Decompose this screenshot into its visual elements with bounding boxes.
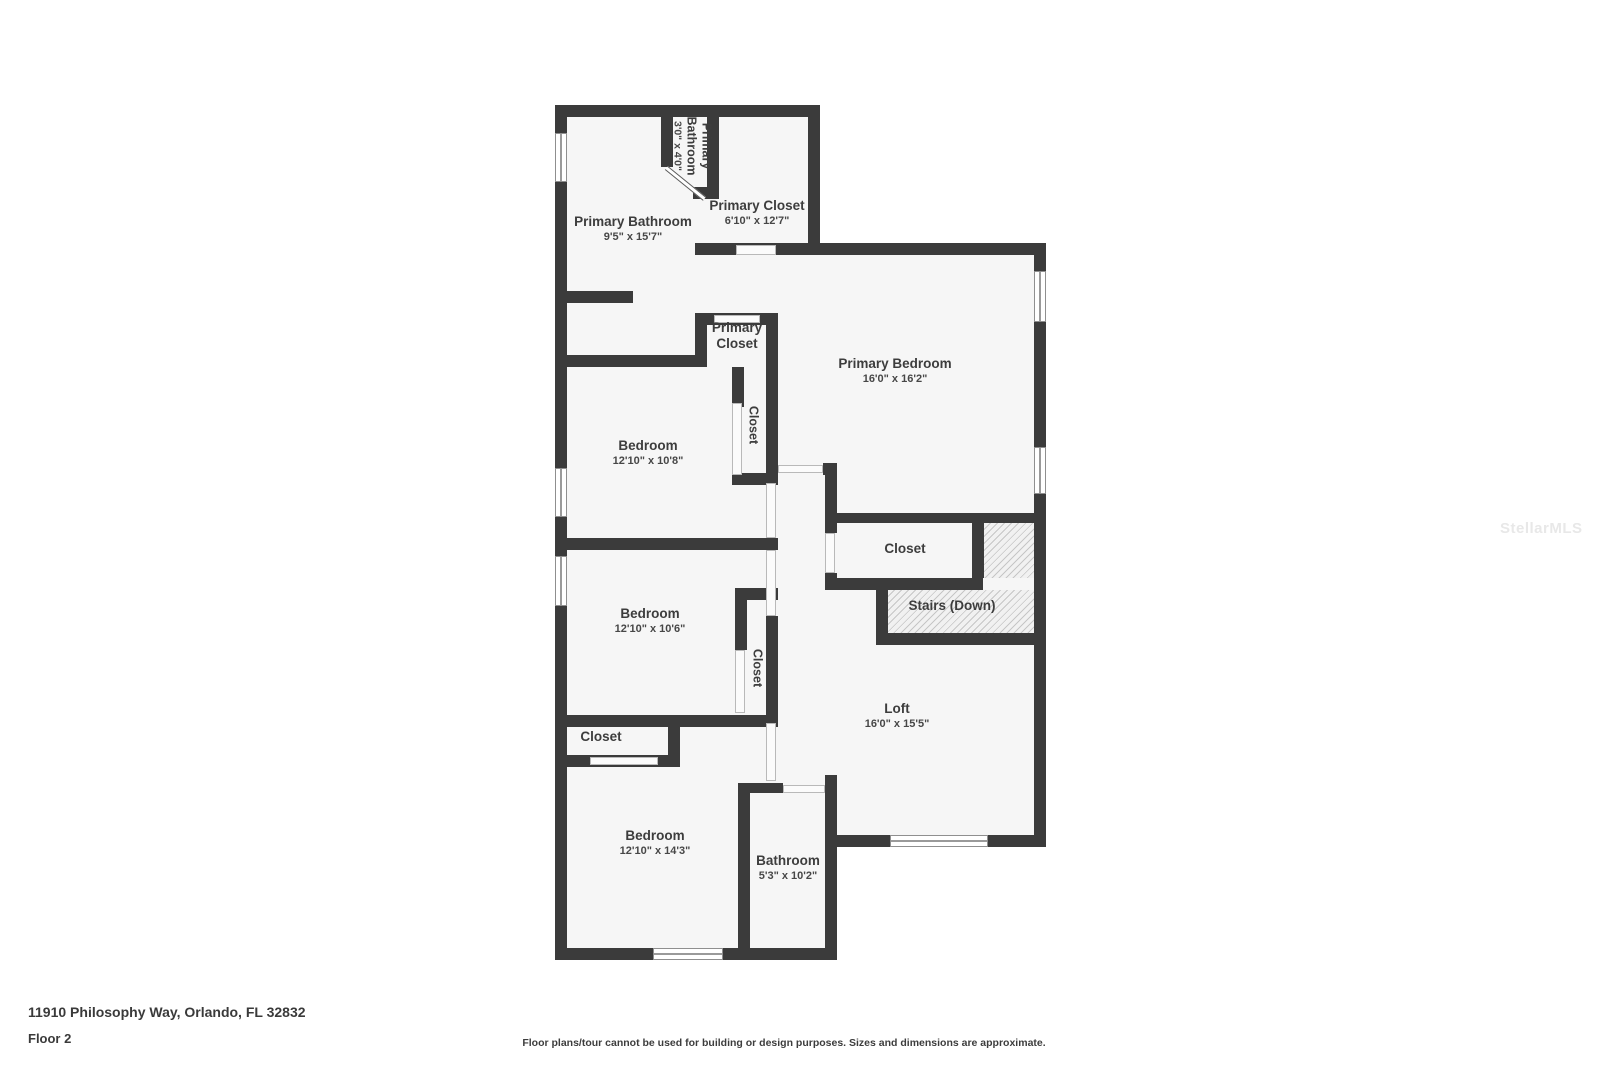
wall [825, 775, 837, 960]
room-label-bedroom-2: Bedroom 12'10" x 10'6" [615, 606, 686, 636]
room-name: Closet [884, 541, 925, 557]
wall [808, 105, 820, 255]
room-dims: 12'10" x 14'3" [620, 844, 691, 858]
wall [738, 783, 750, 960]
window [653, 948, 723, 960]
room-label-bathroom: Bathroom 5'3" x 10'2" [756, 853, 820, 883]
room-dims: 16'0" x 15'5" [865, 717, 930, 731]
stellar-mls-watermark: StellarMLS [1500, 520, 1583, 537]
room-dims: 3'0" x 4'0" [671, 111, 684, 181]
door-opening [736, 245, 776, 255]
wall [766, 616, 778, 723]
property-address: 11910 Philosophy Way, Orlando, FL 32832 [28, 1004, 306, 1020]
room-label-primary-bedroom: Primary Bedroom 16'0" x 16'2" [838, 356, 951, 386]
wall [825, 513, 1046, 523]
room-label-closet-1: Closet [746, 406, 761, 444]
room-dims: 5'3" x 10'2" [756, 869, 820, 883]
wall [738, 783, 783, 793]
room-name: Bedroom [613, 438, 684, 454]
room-dims: 12'10" x 10'8" [613, 454, 684, 468]
wall [555, 538, 778, 550]
room-name: Closet [746, 406, 761, 444]
room-name: Loft [865, 701, 930, 717]
wall [555, 105, 567, 960]
wall [735, 600, 747, 650]
wall [766, 313, 778, 479]
window [890, 835, 988, 847]
wall [825, 578, 983, 590]
wall [876, 633, 1046, 645]
door-opening [590, 757, 658, 765]
door-opening [825, 533, 835, 573]
room-label-stairs-down: Stairs (Down) [908, 598, 995, 614]
room-dims: 16'0" x 16'2" [838, 372, 951, 386]
room-name: Closet [750, 649, 765, 687]
wall [555, 291, 633, 303]
room-dims: 9'5" x 15'7" [574, 230, 692, 244]
room-name: Primary Closet [709, 198, 804, 214]
room-name: Stairs (Down) [908, 598, 995, 614]
door-opening [735, 650, 745, 713]
wall [555, 715, 778, 727]
room-name: Primary Closet [707, 320, 767, 352]
wall [972, 523, 984, 578]
window [555, 556, 567, 606]
door-opening [766, 483, 776, 538]
stairs-hatch [984, 523, 1034, 578]
window [555, 468, 567, 517]
room-label-bedroom-3: Bedroom 12'10" x 14'3" [620, 828, 691, 858]
room-label-bedroom-1: Bedroom 12'10" x 10'8" [613, 438, 684, 468]
door-opening [783, 785, 825, 793]
room-name: Bedroom [615, 606, 686, 622]
room-dims: 6'10" x 12'7" [709, 214, 804, 228]
room-label-closet-stairs: Closet [884, 541, 925, 557]
floor-plan-page: Primary Bathroom 3'0" x 4'0" Primary Bat… [0, 0, 1600, 1067]
door-opening [732, 403, 742, 475]
room-name: Primary Bedroom [838, 356, 951, 372]
door-opening [766, 550, 776, 616]
window [555, 133, 567, 182]
door-opening [766, 723, 776, 781]
room-label-primary-closet-large: Primary Closet 6'10" x 12'7" [709, 198, 804, 228]
room-name: Bedroom [620, 828, 691, 844]
disclaimer-text: Floor plans/tour cannot be used for buil… [0, 1037, 1568, 1049]
window [1034, 447, 1046, 494]
room-label-loft: Loft 16'0" x 15'5" [865, 701, 930, 731]
room-name: Bathroom [756, 853, 820, 869]
room-name: Primary Bathroom [684, 111, 714, 181]
room-label-primary-bathroom-wc: Primary Bathroom 3'0" x 4'0" [671, 111, 714, 181]
room-label-primary-bathroom: Primary Bathroom 9'5" x 15'7" [574, 214, 692, 244]
room-label-closet-2: Closet [750, 649, 765, 687]
room-dims: 12'10" x 10'6" [615, 622, 686, 636]
room-label-closet-3: Closet [580, 729, 621, 745]
wall [732, 367, 744, 407]
window [1034, 271, 1046, 322]
room-name: Primary Bathroom [574, 214, 692, 230]
door-opening [778, 465, 823, 473]
wall [1034, 243, 1046, 847]
room-label-primary-closet-small: Primary Closet [707, 320, 767, 352]
wall [555, 355, 707, 367]
room-name: Closet [580, 729, 621, 745]
